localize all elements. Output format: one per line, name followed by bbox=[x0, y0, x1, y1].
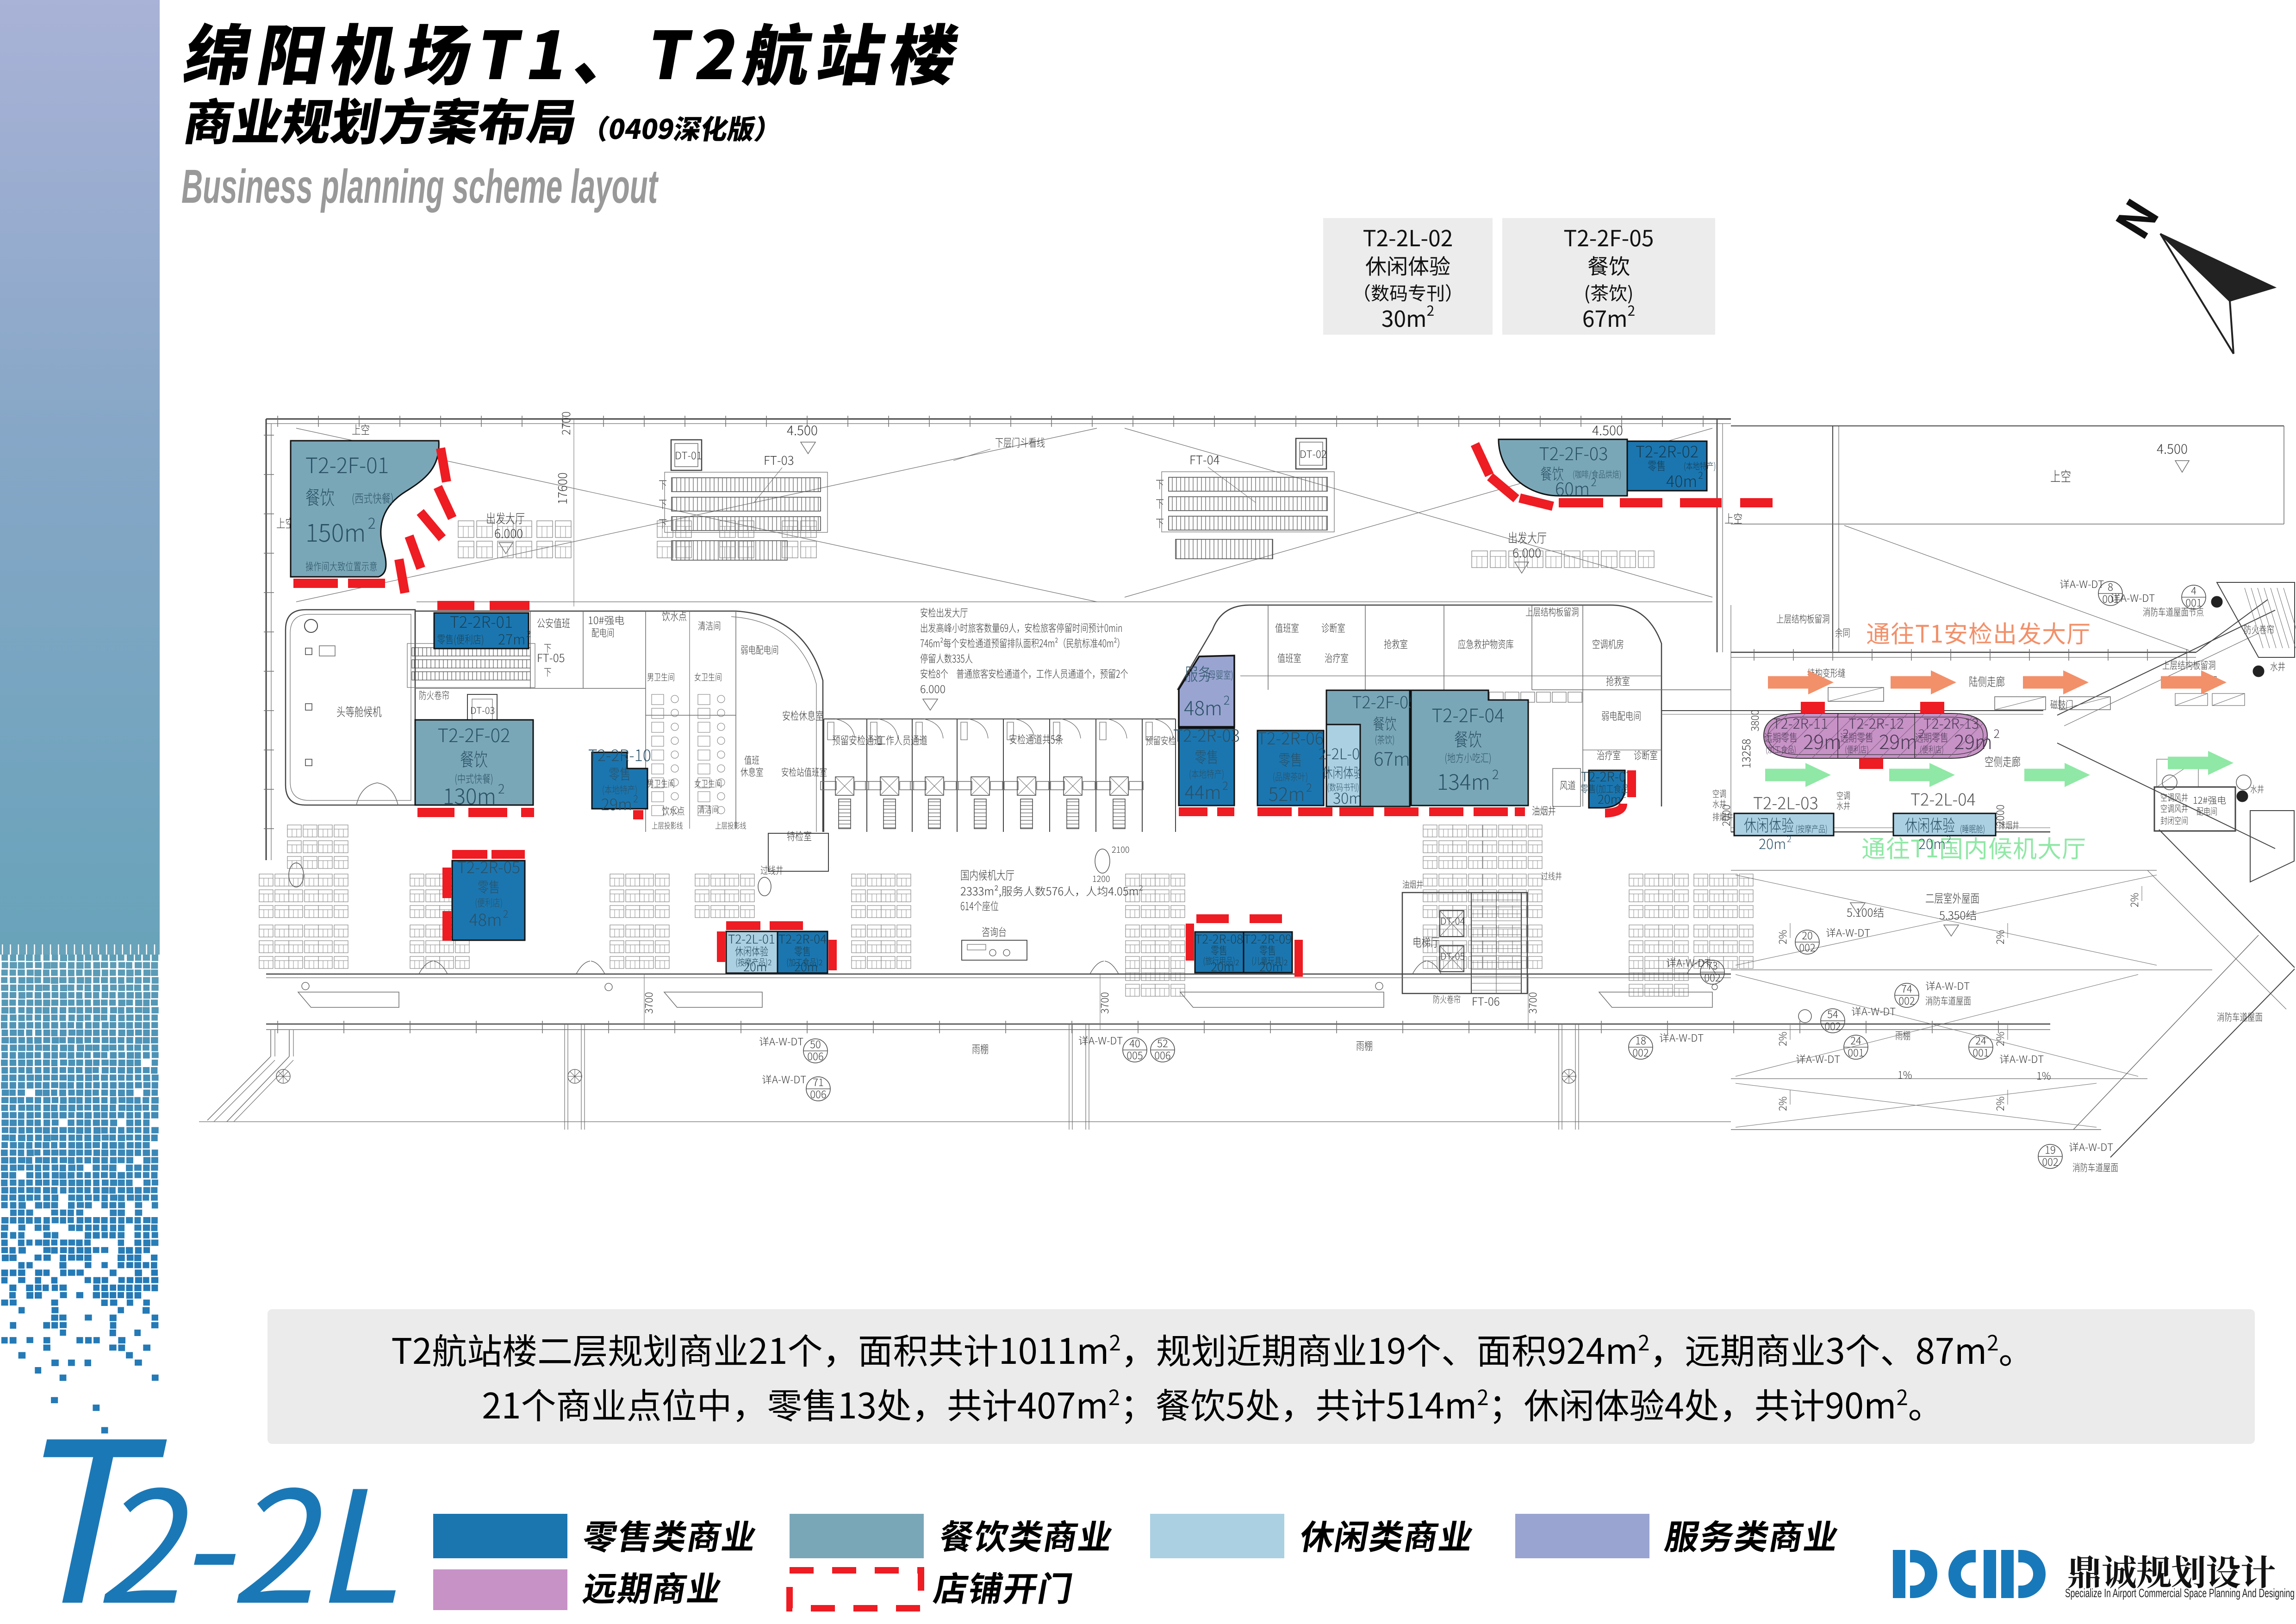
svg-text:Specialize In Airport Commerci: Specialize In Airport Commercial Space P… bbox=[2065, 1586, 2295, 1600]
svg-text:Business planning scheme layou: Business planning scheme layout bbox=[181, 160, 659, 213]
